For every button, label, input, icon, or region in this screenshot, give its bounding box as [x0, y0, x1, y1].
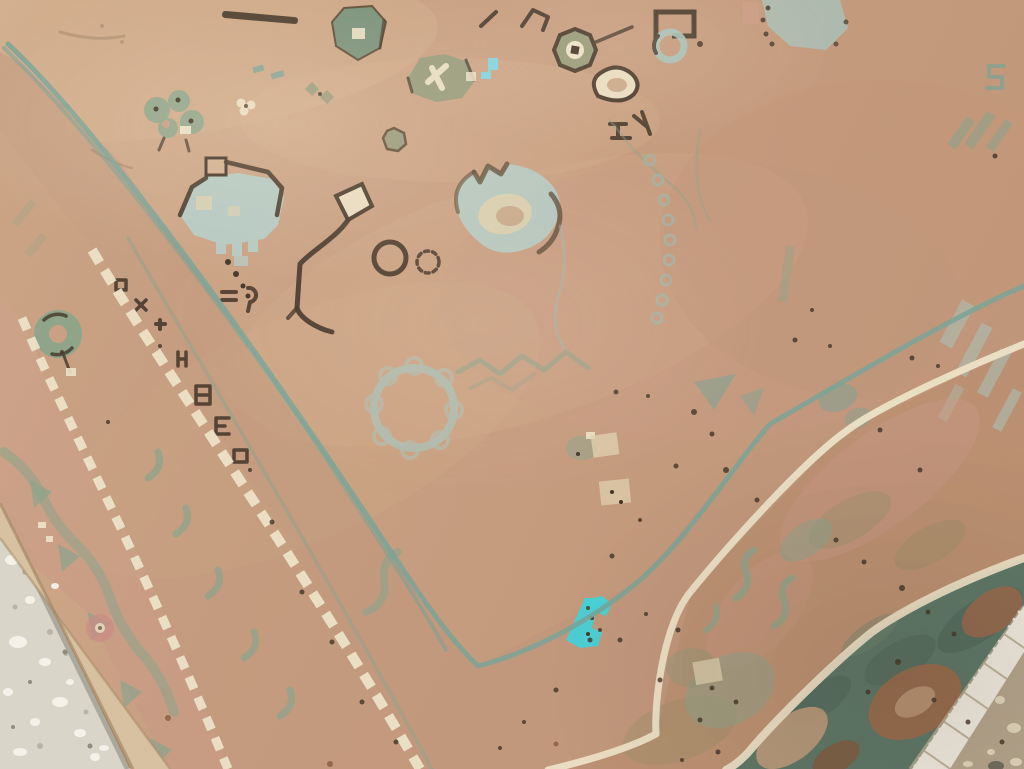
motif-hook-glyph-top: [481, 10, 548, 30]
motif-glyph-49: [222, 288, 256, 311]
motif-connector-line: [596, 27, 632, 42]
motif-teardrop: [594, 67, 638, 100]
motif-cream-patches: [591, 432, 632, 505]
rug-scene: [0, 0, 1024, 769]
motif-small-hexagon: [383, 128, 406, 151]
motif-octagon-medallion: [554, 29, 596, 71]
motif-blue-ring: [654, 32, 684, 60]
pink-rosette: [86, 614, 114, 642]
rug-photograph: [0, 0, 1024, 769]
motif-faded-blue-palmette: [743, 0, 849, 50]
